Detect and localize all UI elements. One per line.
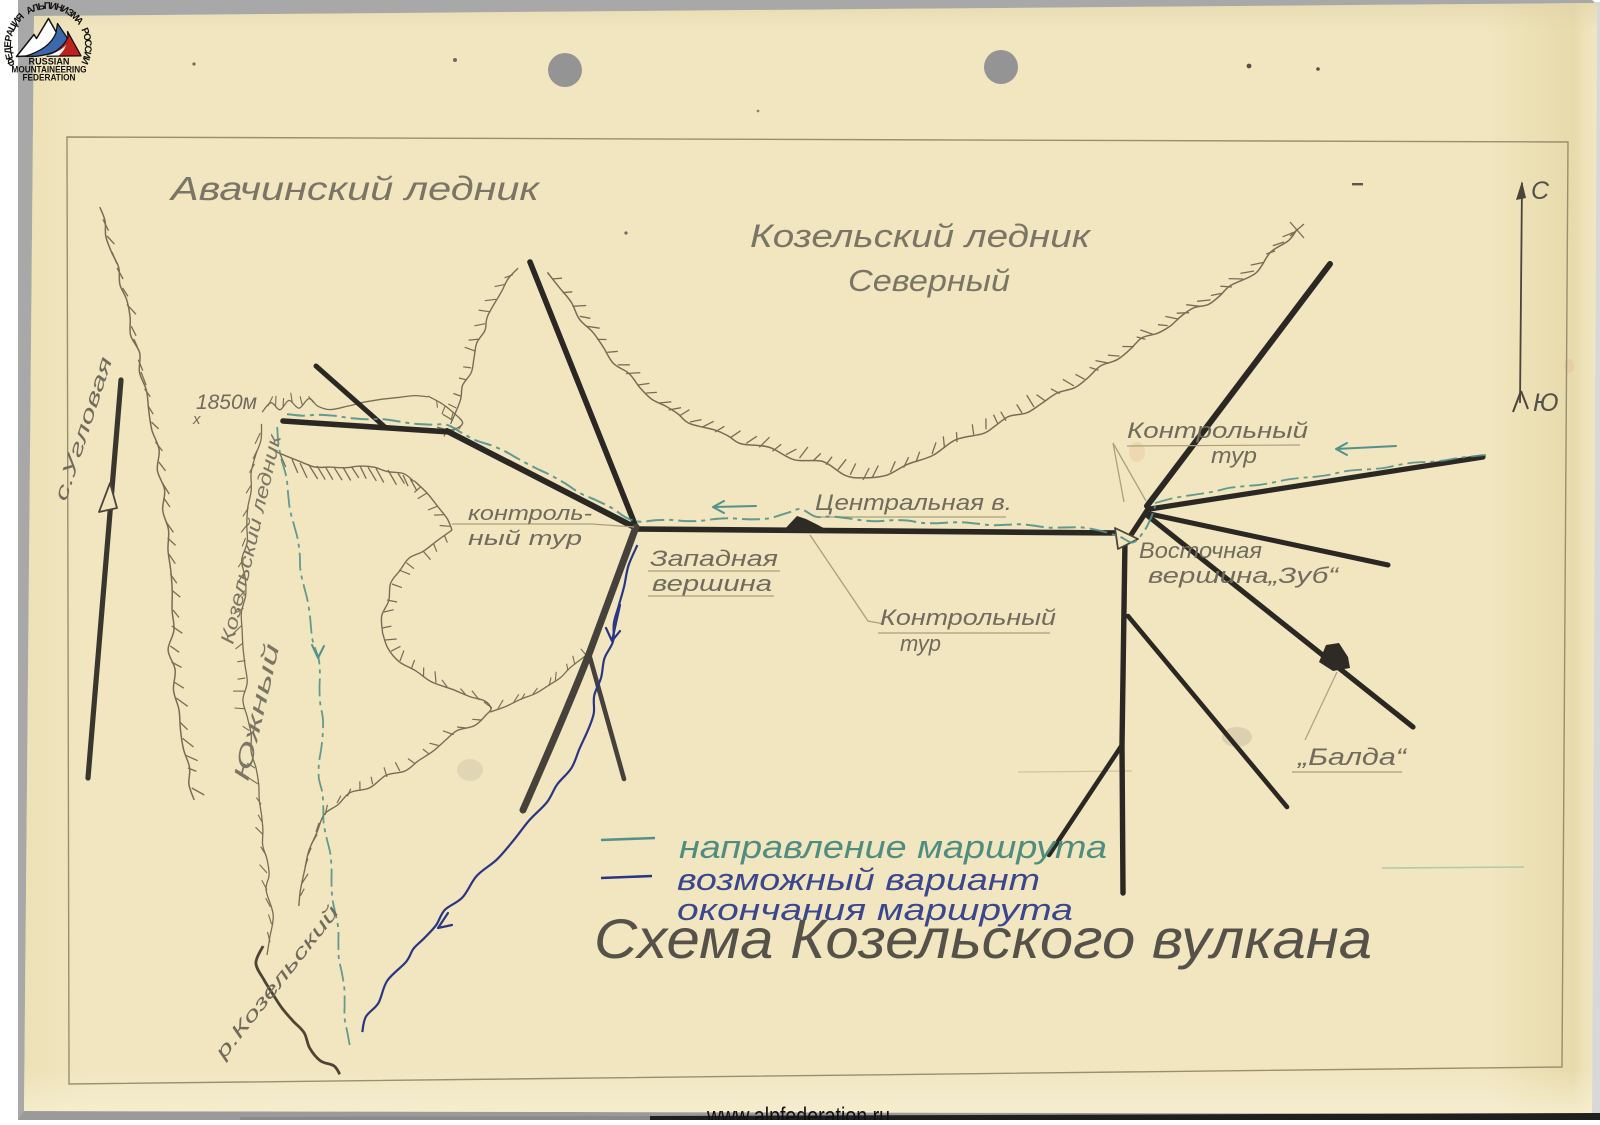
svg-text:Северный: Северный: [848, 263, 1010, 298]
svg-text:Контрольный: Контрольный: [880, 605, 1056, 630]
svg-text:x: x: [192, 411, 201, 428]
svg-text:тур: тур: [900, 631, 941, 656]
svg-text:FEDERATION: FEDERATION: [23, 73, 76, 84]
svg-text:1850м: 1850м: [196, 391, 257, 414]
svg-text:контроль-: контроль-: [468, 503, 592, 525]
svg-text:тур: тур: [1211, 443, 1257, 468]
svg-text:Восточная: Восточная: [1139, 538, 1262, 563]
svg-text:Центральная в.: Центральная в.: [815, 490, 1012, 515]
svg-text:ный тур: ный тур: [468, 528, 582, 550]
svg-text:Ю: Ю: [1533, 389, 1559, 417]
svg-text:вершина: вершина: [652, 571, 772, 596]
svg-text:C: C: [1531, 177, 1550, 205]
svg-text:Схема Козельского вулкана: Схема Козельского вулкана: [594, 907, 1372, 970]
svg-text:www.alpfederation.ru: www.alpfederation.ru: [706, 1103, 890, 1120]
svg-text:вершина„Зуб“: вершина„Зуб“: [1148, 563, 1340, 588]
svg-text:Контрольный: Контрольный: [1127, 418, 1308, 443]
svg-text:Авачинский ледник: Авачинский ледник: [168, 170, 540, 207]
svg-text:Западная: Западная: [650, 546, 778, 571]
svg-text:„Балда“: „Балда“: [1297, 744, 1409, 771]
svg-text:направление маршрута: направление маршрута: [679, 829, 1107, 865]
svg-text:Козельский ледник: Козельский ледник: [750, 218, 1092, 254]
